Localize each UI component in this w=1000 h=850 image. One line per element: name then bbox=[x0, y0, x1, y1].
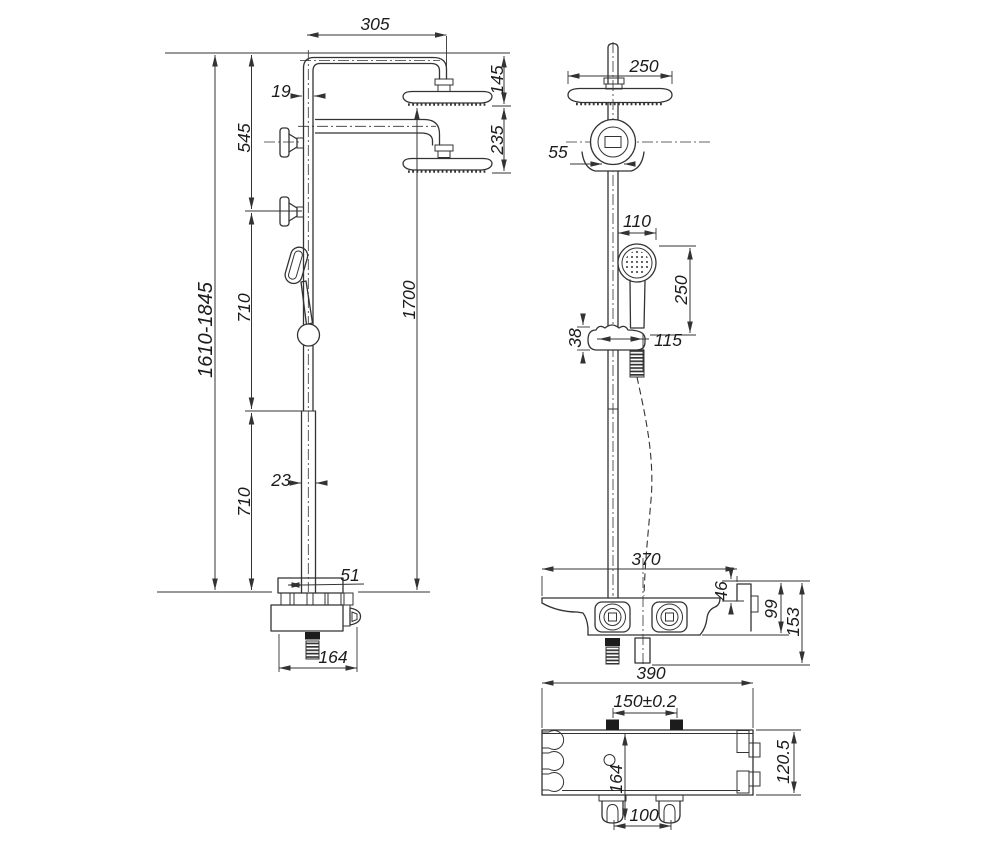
dim-145: 145 bbox=[487, 65, 507, 94]
dim-370: 370 bbox=[631, 549, 660, 569]
dim-153: 153 bbox=[783, 607, 803, 636]
side-view: 250 55 110 250 38 115 bbox=[542, 42, 810, 668]
mounting-foot-right bbox=[656, 795, 683, 823]
hand-shower-handle bbox=[301, 281, 313, 325]
dim-1610-1845: 1610-1845 bbox=[195, 281, 217, 378]
mixer-knob-right bbox=[652, 602, 687, 632]
mounting-foot-left bbox=[599, 795, 626, 823]
shower-system-drawing: 305 19 545 710 710 1610-1845 23 51 164 bbox=[0, 0, 1000, 850]
dim-110: 110 bbox=[623, 211, 651, 231]
dim-46: 46 bbox=[711, 581, 731, 601]
front-view-dimensions: 305 19 545 710 710 1610-1845 23 51 164 bbox=[195, 14, 511, 672]
dim-710-lower: 710 bbox=[234, 487, 254, 516]
inlet-left bbox=[606, 720, 619, 731]
dim-250-head: 250 bbox=[628, 56, 658, 76]
dim-1700: 1700 bbox=[399, 280, 419, 319]
dim-55: 55 bbox=[548, 142, 568, 162]
outlet-port bbox=[635, 638, 650, 663]
dim-390: 390 bbox=[636, 663, 665, 683]
dim-710-upper: 710 bbox=[234, 293, 254, 322]
shower-column bbox=[300, 50, 447, 593]
shower-head-disc bbox=[403, 92, 492, 104]
dim-305: 305 bbox=[360, 14, 389, 34]
mixer-shelf bbox=[278, 578, 343, 593]
wall-clamp-upper bbox=[737, 731, 760, 758]
spray-face bbox=[625, 251, 649, 275]
mixer-plan-view bbox=[542, 558, 758, 668]
mixer-body-front bbox=[271, 605, 343, 631]
dim-235: 235 bbox=[487, 125, 507, 155]
front-view: 305 19 545 710 710 1610-1845 23 51 164 bbox=[157, 14, 511, 672]
dim-545: 545 bbox=[234, 123, 254, 152]
slider-ring bbox=[298, 324, 320, 346]
wall-bracket-lower bbox=[280, 197, 304, 226]
dim-164-bottom: 164 bbox=[606, 764, 626, 793]
hand-shower-side bbox=[618, 244, 656, 328]
wall-hook bbox=[737, 584, 758, 631]
overhead-shower-upper-position bbox=[403, 79, 492, 105]
body-hole bbox=[604, 755, 615, 766]
dim-38: 38 bbox=[565, 328, 585, 348]
inlet-right bbox=[670, 720, 683, 731]
dim-115: 115 bbox=[654, 330, 682, 350]
hose-spring bbox=[630, 350, 644, 377]
dim-51: 51 bbox=[340, 565, 359, 585]
wall-bracket-upper bbox=[264, 128, 304, 157]
dim-99: 99 bbox=[761, 599, 781, 619]
overhead-shower-lower-position bbox=[403, 145, 492, 172]
head-connector-nut bbox=[435, 79, 453, 85]
shower-head-disc-low bbox=[403, 159, 492, 171]
overhead-shower-side bbox=[568, 89, 672, 105]
dim-150: 150±0.2 bbox=[613, 691, 676, 711]
bottom-view-dimensions: 150±0.2 164 100 120.5 bbox=[606, 691, 801, 830]
dim-19: 19 bbox=[271, 81, 291, 101]
spout-coils bbox=[542, 731, 564, 792]
wall-clamp-lower bbox=[737, 771, 760, 793]
dim-23: 23 bbox=[270, 470, 291, 490]
dim-250-handshower: 250 bbox=[671, 275, 691, 305]
side-view-dimensions: 250 55 110 250 38 115 bbox=[542, 56, 810, 665]
dim-164-front: 164 bbox=[318, 647, 347, 667]
bottom-view: 390 bbox=[542, 663, 801, 830]
lower-shower-arm bbox=[298, 120, 440, 146]
diverter-knob bbox=[343, 605, 361, 626]
mixer-knob-left bbox=[595, 602, 630, 632]
dim-100: 100 bbox=[629, 805, 658, 825]
dim-120-5: 120.5 bbox=[773, 740, 793, 784]
wall-bracket-side bbox=[566, 120, 710, 172]
spout-plan bbox=[605, 638, 620, 664]
technical-drawing-page: 305 19 545 710 710 1610-1845 23 51 164 bbox=[0, 0, 1000, 850]
